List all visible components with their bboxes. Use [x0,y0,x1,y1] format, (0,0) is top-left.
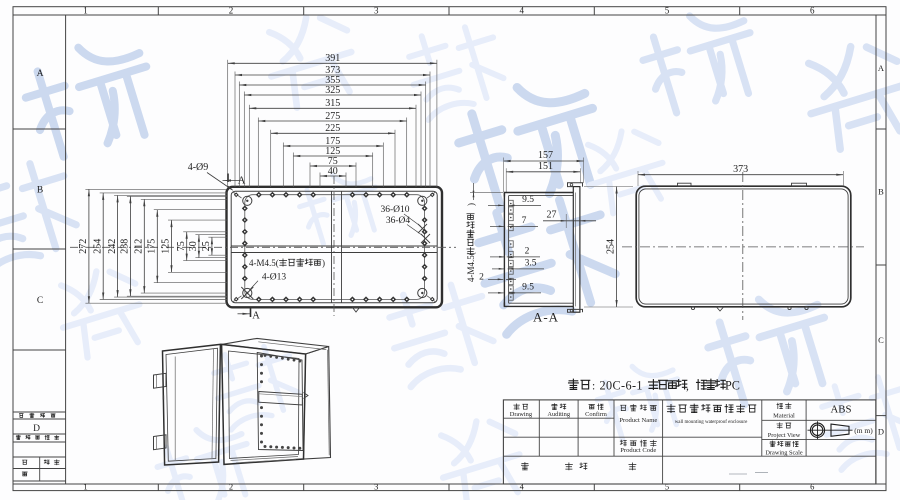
svg-text:A: A [878,63,885,73]
svg-text:225: 225 [325,123,340,134]
svg-text:Drawing Scale: Drawing Scale [765,450,802,457]
svg-text:27: 27 [547,209,557,220]
svg-text:6: 6 [810,482,814,492]
svg-text:151: 151 [538,161,553,172]
svg-text:25: 25 [201,241,212,251]
svg-text:20C-6-1: 20C-6-1 [600,379,643,393]
svg-text:125: 125 [161,239,172,254]
svg-text:36-Ø10: 36-Ø10 [380,205,409,215]
svg-text:D: D [33,424,40,434]
svg-text:C: C [37,296,43,306]
svg-text:9.5: 9.5 [522,195,534,205]
svg-text:4-M4.5(: 4-M4.5( [249,258,279,268]
svg-text:A-A: A-A [533,310,559,325]
svg-text:3.5: 3.5 [525,259,537,269]
svg-text:B: B [37,186,43,196]
svg-text:Product Name: Product Name [619,417,657,424]
svg-text:A: A [37,69,44,79]
svg-text:238: 238 [120,239,131,254]
svg-text:(m m): (m m) [854,426,873,435]
svg-text:Drawing: Drawing [510,411,533,418]
svg-text:2: 2 [479,272,484,282]
svg-text:Material: Material [773,413,795,420]
svg-text:C: C [878,335,884,345]
svg-text:4-M4.5(: 4-M4.5( [466,252,476,282]
svg-text:3: 3 [374,5,379,15]
svg-text:Product Code: Product Code [620,447,656,454]
svg-text:): ) [322,258,325,268]
svg-text:A: A [252,311,260,322]
svg-text:373: 373 [733,164,748,175]
svg-text:5: 5 [665,5,670,15]
svg-text:315: 315 [325,98,340,109]
svg-text:4: 4 [519,5,524,15]
svg-text:391: 391 [325,53,340,64]
svg-text:272: 272 [78,239,89,254]
svg-text:D: D [878,427,884,437]
svg-text::: : [592,381,595,393]
svg-text:5: 5 [665,482,669,492]
svg-text:75: 75 [176,241,187,251]
svg-text:2: 2 [229,482,233,492]
svg-text:242: 242 [107,239,118,254]
svg-text:175: 175 [147,239,158,254]
svg-text:wall mounting waterproof enclo: wall mounting waterproof enclosure [675,420,748,425]
svg-text:2: 2 [525,247,530,257]
svg-text:Auditing: Auditing [547,411,571,418]
svg-text:254: 254 [606,239,617,254]
svg-text:4: 4 [520,482,525,492]
svg-text:1: 1 [83,482,87,492]
svg-text:,: , [686,381,689,393]
svg-text:40: 40 [328,166,338,177]
svg-text:Project View: Project View [768,432,801,439]
svg-text:275: 275 [325,111,340,122]
svg-text:325: 325 [325,85,340,96]
svg-text:7: 7 [522,216,527,226]
svg-text:6: 6 [810,5,815,15]
svg-text:36-Ø4: 36-Ø4 [386,216,411,226]
svg-text:Confirm: Confirm [585,411,607,418]
svg-text:ABS: ABS [830,404,851,416]
svg-text:2: 2 [229,5,234,15]
svg-text:30: 30 [188,241,199,251]
svg-text:3: 3 [374,482,378,492]
svg-text:B: B [878,187,884,197]
svg-text:9.5: 9.5 [522,283,534,293]
svg-text:A: A [238,176,246,187]
svg-text:PC: PC [725,379,740,393]
svg-text:4-Ø13: 4-Ø13 [262,273,287,283]
svg-text:4-Ø9: 4-Ø9 [188,162,209,173]
svg-text:1: 1 [83,5,88,15]
svg-text:157: 157 [538,150,553,161]
svg-text:): ) [466,203,476,206]
svg-text:212: 212 [134,239,145,254]
svg-text:254: 254 [92,239,103,254]
